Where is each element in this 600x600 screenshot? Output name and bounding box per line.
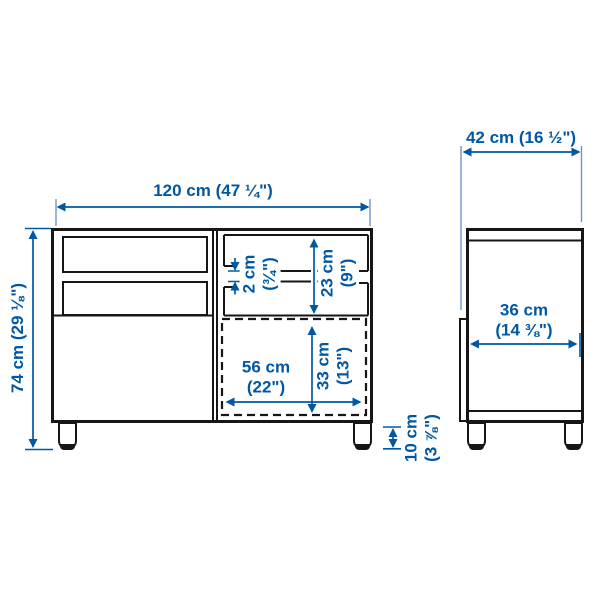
compartment-height-inches: (9"): [338, 249, 358, 297]
height-ticks: [25, 229, 53, 450]
compartment-height-label: 23 cm (9"): [318, 248, 359, 298]
leg-height-inches: (3 ⅞"): [422, 414, 442, 462]
leg-height-cm: 10 cm: [402, 414, 422, 462]
front-width-label: 120 cm (47 ¼"): [152, 181, 274, 201]
shelf-thickness-cm: 2 cm: [240, 255, 260, 294]
inner-depth-label: 36 cm (14 ⅜"): [494, 301, 553, 342]
door-height-label: 33 cm (13"): [314, 341, 355, 391]
leg-height-label: 10 cm (3 ⅞"): [402, 413, 443, 463]
leg-height-ticks: [383, 427, 401, 449]
door-height-cm: 33 cm: [314, 342, 334, 390]
shelf-thickness-label: 2 cm (¾"): [240, 254, 281, 295]
dimension-diagram: 120 cm (47 ¼") 74 cm (29 ⅛") 2 cm (¾") 2…: [0, 0, 600, 600]
shelf-thickness-inches: (¾"): [260, 255, 280, 294]
front-height-label: 74 cm (29 ⅛"): [8, 282, 28, 394]
door-width-inches: (22"): [242, 378, 290, 398]
side-leg-right: [565, 423, 582, 450]
side-depth-label: 42 cm (16 ½"): [465, 128, 577, 148]
compartment-height-cm: 23 cm: [318, 249, 338, 297]
door-height-inches: (13"): [334, 342, 354, 390]
front-leg-left: [59, 423, 76, 450]
side-leg-left: [468, 423, 485, 450]
inner-depth-cm: 36 cm: [495, 301, 552, 321]
width-extension-lines: [56, 199, 370, 226]
door-width-cm: 56 cm: [242, 358, 290, 378]
front-leg-right: [354, 423, 371, 450]
door-width-label: 56 cm (22"): [241, 358, 291, 399]
inner-depth-inches: (14 ⅜"): [495, 321, 552, 341]
